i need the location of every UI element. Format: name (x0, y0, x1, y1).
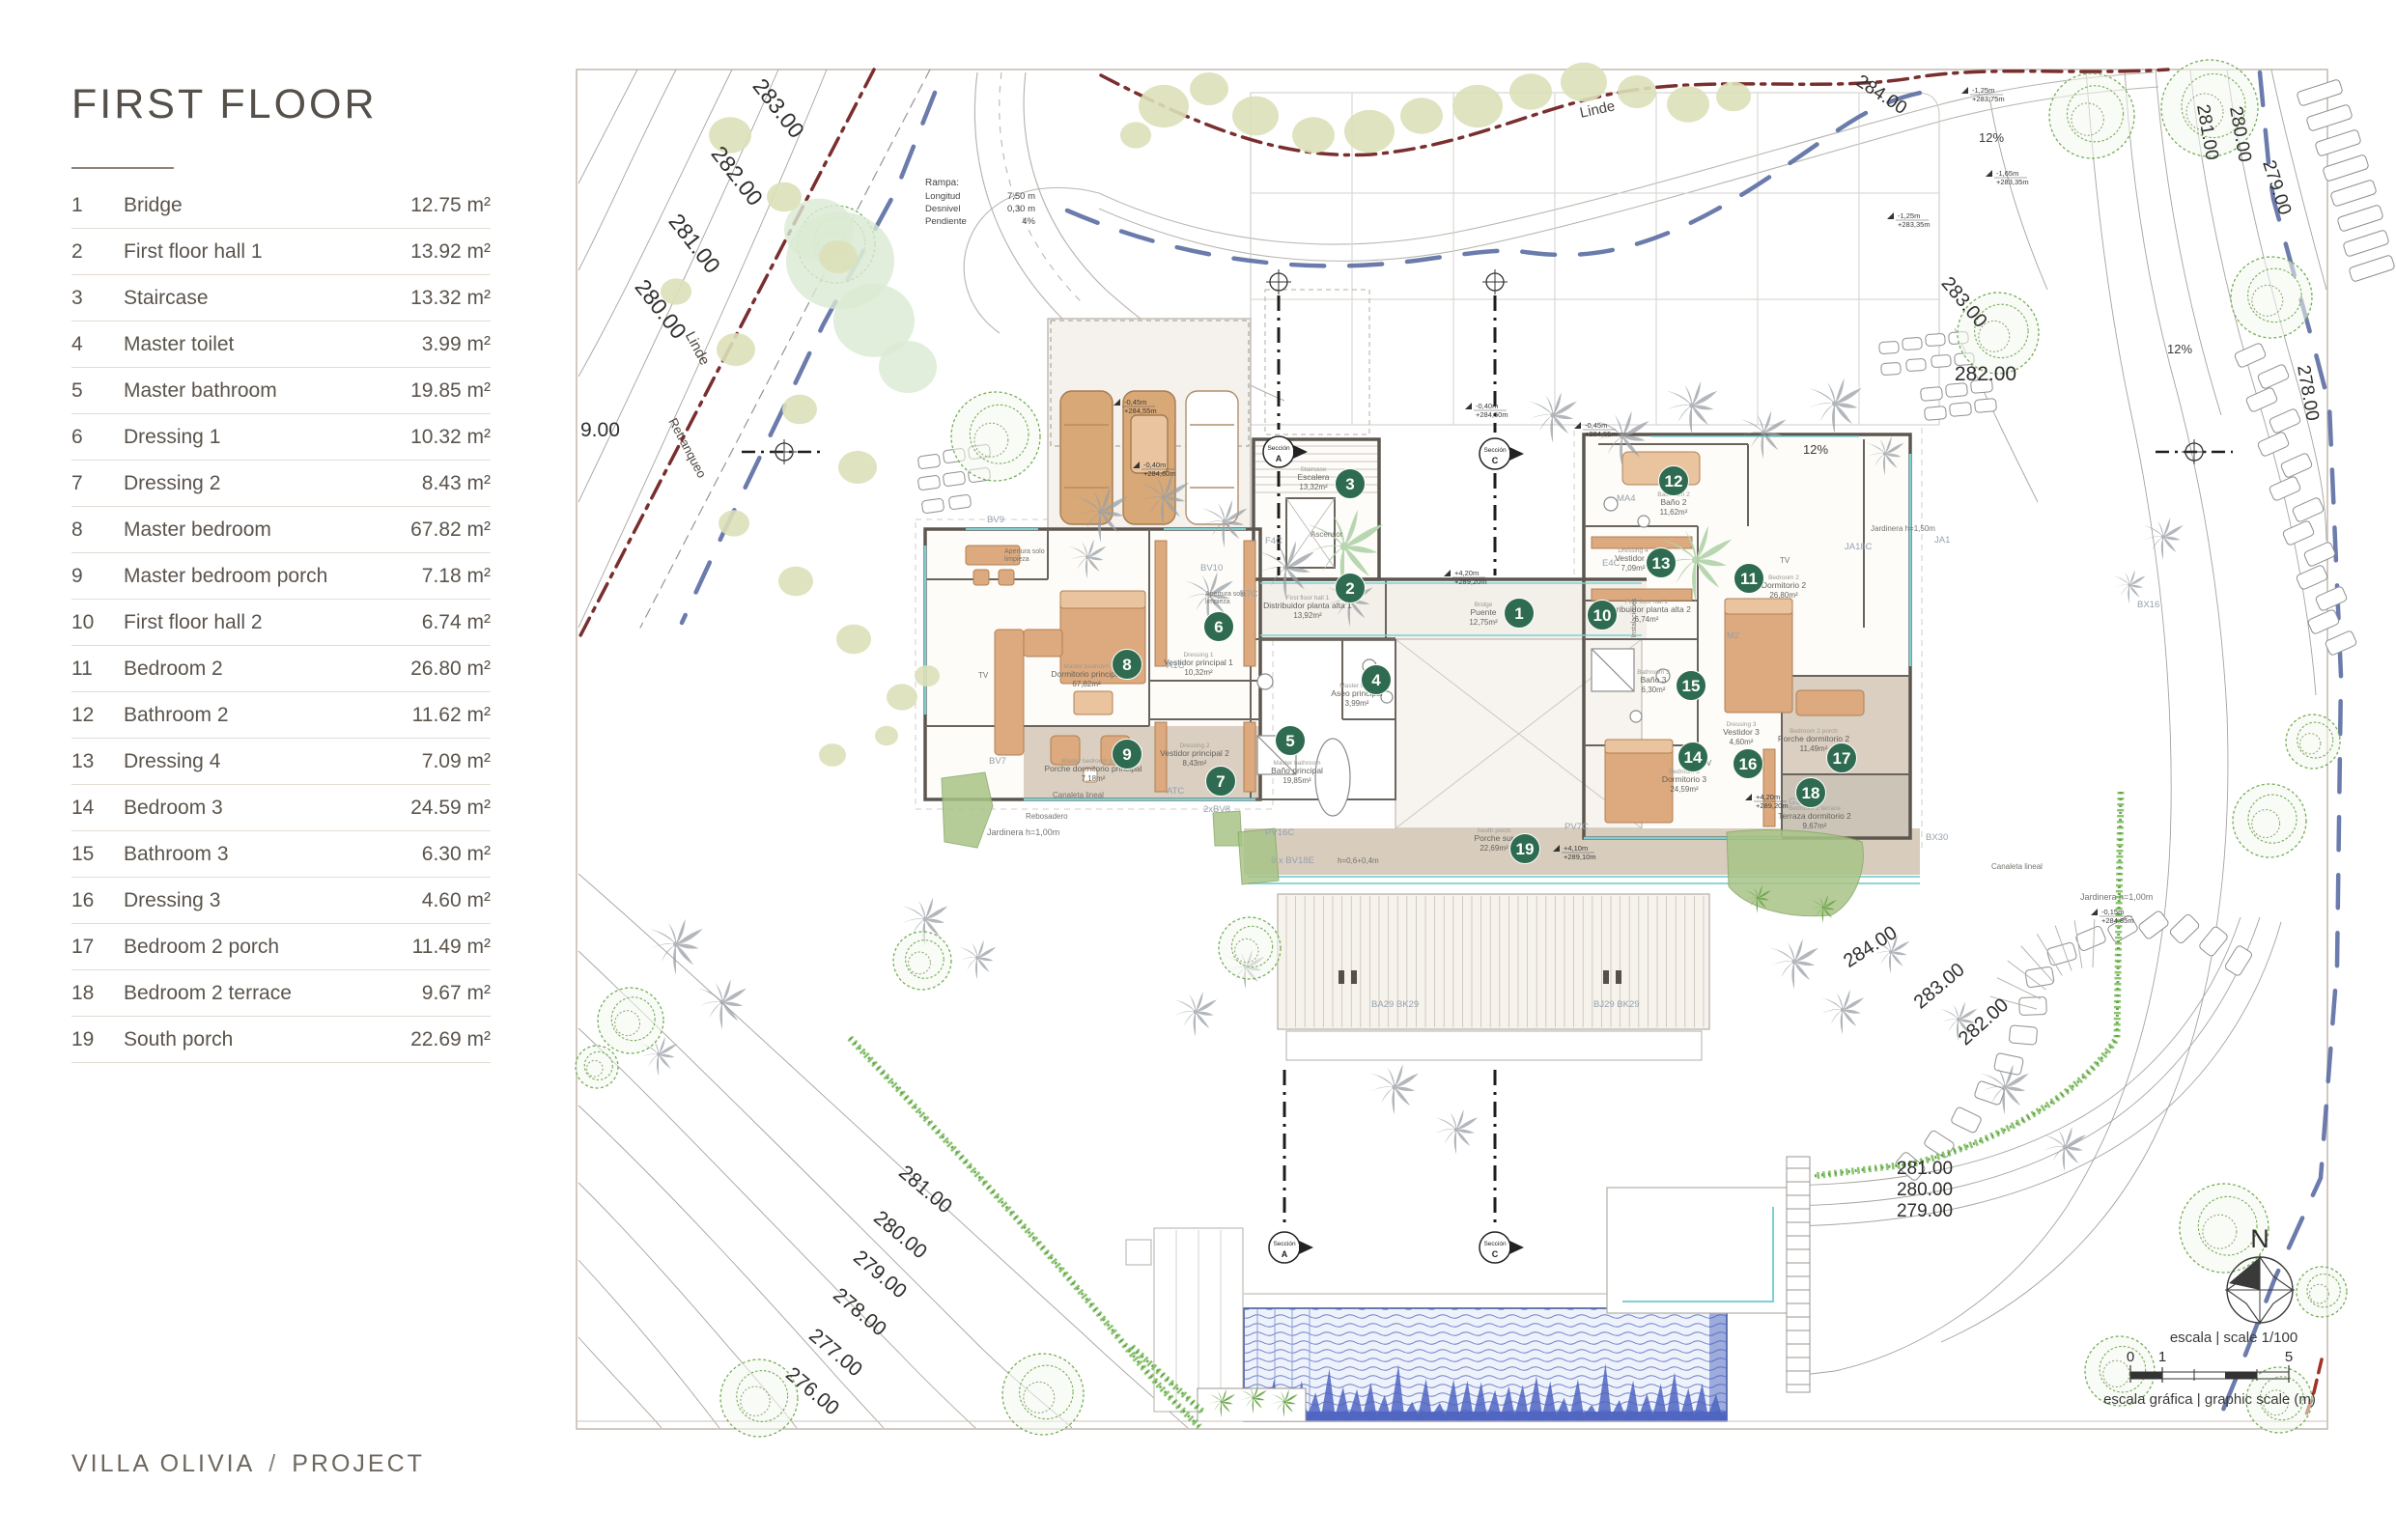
bush-icon (1120, 122, 1151, 148)
room-label-area: 7,18m² (1082, 774, 1106, 783)
room-badge: 15 (1677, 671, 1706, 701)
room-label-es: Porche sur (1474, 833, 1513, 843)
bush-icon (836, 625, 871, 655)
ramp-note-value: 0,30 m (1007, 204, 1035, 214)
room-badge: 12 (1659, 466, 1689, 496)
bush-icon (1452, 85, 1503, 127)
level-value: -1,25m (1898, 211, 1920, 220)
misc-label: limpieza (1205, 599, 1230, 605)
component-code: ATC (1167, 786, 1184, 797)
ramp-note-label: Pendiente (925, 216, 967, 227)
bush-icon (887, 684, 917, 710)
ramp-note-title: Rampa: (925, 178, 959, 188)
room-label-es: Porche dormitorio 2 (1778, 734, 1849, 743)
room-badge: 2 (1336, 574, 1366, 603)
bush-icon (778, 567, 813, 597)
section-marker-label: Sección (1483, 447, 1507, 454)
level-value: +284,55m (1124, 406, 1157, 415)
ramp-note-value: 4% (1022, 216, 1035, 227)
bush-icon (767, 182, 802, 212)
component-code: 2xBV8 (1203, 804, 1230, 815)
misc-label: Jardinera h=1,00m (987, 827, 1059, 837)
component-code: MA4 (1617, 493, 1636, 504)
room-label-es: Vestidor 3 (1723, 727, 1760, 737)
room-badge: 7 (1206, 767, 1236, 797)
level-value: +284,85m (2101, 916, 2134, 925)
level-value: +4,20m (1454, 569, 1479, 577)
bush-icon (1190, 72, 1228, 105)
room-label-es: Baño principal (1271, 766, 1323, 775)
level-value: -0,15m (2101, 908, 2124, 916)
room-badge-number: 19 (1516, 840, 1535, 858)
component-code: BV9 (987, 515, 1004, 525)
slope-label: 12% (1803, 442, 1828, 457)
room-label-area: 6,30m² (1642, 686, 1666, 694)
misc-label-vertical: Instalaciones (1631, 598, 1638, 637)
tree-icon (576, 1046, 618, 1088)
bush-icon (782, 395, 817, 425)
component-code: PV7C (1564, 822, 1589, 832)
level-value: +289,20m (1454, 577, 1487, 586)
bush-icon (717, 333, 755, 366)
room-label-area: 9,67m² (1803, 822, 1827, 830)
room-label-es: Baño 2 (1661, 497, 1687, 507)
bush-icon (1292, 117, 1335, 153)
room-badge: 3 (1336, 469, 1366, 499)
room-badge-number: 1 (1514, 604, 1523, 623)
misc-label: Apertura solo (1004, 548, 1045, 555)
scale-caption: escala gráfica | graphic scale (m) (2103, 1391, 2316, 1408)
misc-label: h=0,6+0,4m (1338, 856, 1379, 865)
level-value: -0,45m (1124, 398, 1146, 406)
room-label-area: 8,43m² (1183, 759, 1207, 768)
bush-icon (875, 726, 898, 745)
contour-label: 282.00 (1955, 363, 2016, 385)
room-badge-number: 10 (1593, 606, 1612, 625)
scale-number: 5 (2285, 1349, 2293, 1365)
tree-icon (720, 1359, 798, 1437)
slope-label: 12% (1979, 130, 2004, 145)
component-code: BV10 (1200, 563, 1223, 574)
room-badge-number: 7 (1216, 772, 1225, 791)
section-marker-letter: C (1492, 1249, 1499, 1259)
section-marker-letter: A (1276, 454, 1283, 463)
section-marker-label: Sección (1267, 445, 1290, 452)
component-code: BX16 (2137, 600, 2159, 610)
bush-icon (915, 665, 940, 686)
room-label-area: 13,92m² (1293, 611, 1322, 620)
ramp-note-label: Longitud (925, 191, 960, 202)
room-badge-number: 14 (1684, 748, 1703, 767)
shrub-cluster (879, 341, 937, 393)
room-label-area: 26,80m² (1769, 591, 1798, 600)
misc-label: TV (978, 671, 989, 680)
section-marker-label: Sección (1273, 1241, 1296, 1247)
bush-icon (819, 743, 846, 767)
slope-label: 12% (2167, 342, 2192, 356)
misc-label: Canaleta lineal (1991, 862, 2043, 871)
component-code: 9 x BV18E (1271, 855, 1314, 866)
room-label-area: 10,32m² (1184, 668, 1213, 677)
room-badge: 10 (1588, 601, 1618, 630)
bush-icon (1344, 110, 1395, 153)
component-code: JA18C (1845, 542, 1873, 552)
component-code: F4C (1265, 536, 1283, 546)
room-label-es: Vestidor principal 2 (1160, 748, 1229, 758)
misc-label: Ascensor (1311, 530, 1343, 539)
tree-icon (598, 988, 663, 1053)
room-badge: 9 (1113, 740, 1142, 770)
room-badge: 4 (1362, 665, 1392, 695)
bush-icon (1561, 63, 1607, 102)
level-value: +283,75m (1972, 95, 2005, 103)
bush-icon (1618, 75, 1656, 108)
misc-label: limpieza (1004, 556, 1029, 563)
level-value: +4,10m (1564, 844, 1588, 853)
ramp-note-label: Desnivel (925, 204, 960, 214)
room-badge: 6 (1204, 612, 1234, 642)
misc-label: Canaleta lineal (1053, 791, 1104, 799)
level-value: +289,20m (1756, 801, 1789, 810)
bush-icon (1716, 82, 1751, 112)
room-label-area: 24,59m² (1670, 785, 1699, 794)
room-badge-number: 11 (1740, 570, 1758, 588)
room-label-area: 3,99m² (1345, 699, 1369, 708)
room-badge-number: 3 (1345, 475, 1354, 493)
room-label-es: Terraza dormitorio 2 (1778, 811, 1851, 821)
room-badge-number: 2 (1345, 579, 1354, 598)
room-label-area: 67,82m² (1072, 680, 1101, 688)
room-badge: 11 (1734, 564, 1764, 594)
room-badge-number: 8 (1122, 656, 1131, 674)
room-badge-number: 13 (1652, 554, 1671, 573)
contour-label: 279.00 (1897, 1201, 1953, 1221)
component-code: M2 (1727, 630, 1739, 641)
planter-greenery (1213, 811, 1242, 846)
room-badge: 13 (1647, 548, 1677, 578)
room-label-area: 13,32m² (1299, 483, 1328, 491)
room-label-area: 6,74m² (1635, 615, 1659, 624)
component-code: JA1 (1934, 535, 1950, 546)
component-code: E4C (1602, 558, 1621, 569)
misc-label: Apertura solo (1205, 591, 1246, 598)
misc-label: Rebosadero (1026, 812, 1068, 821)
level-value: -1,25m (1972, 86, 1994, 95)
room-badge-number: 6 (1214, 618, 1223, 636)
room-label-es: Baño 3 (1641, 675, 1667, 685)
room-label-area: 22,69m² (1480, 844, 1508, 853)
room-label-es: Dormitorio 3 (1662, 774, 1707, 784)
room-badge: 16 (1734, 749, 1763, 779)
site-plan: Rampa:Longitud7,50 mDesnivel0,30 mPendie… (0, 0, 2396, 1540)
room-badge-number: 4 (1371, 671, 1381, 689)
ramp-note-value: 7,50 m (1007, 191, 1035, 202)
scale-number: 0 (2127, 1349, 2134, 1365)
room-label-es: Puente (1471, 607, 1497, 617)
bush-icon (838, 451, 877, 484)
level-value: +284,50m (1476, 410, 1508, 419)
bush-icon (819, 240, 858, 273)
bush-icon (1139, 85, 1189, 127)
level-value: +284,55m (1585, 430, 1618, 438)
room-badge: 17 (1827, 743, 1857, 773)
contour-label: 280.00 (1897, 1180, 1953, 1200)
level-value: -0,45m (1585, 421, 1607, 430)
bush-icon (1232, 97, 1279, 136)
room-label-es: Distribuidor planta alta 1 (1263, 601, 1352, 610)
section-marker-letter: A (1282, 1249, 1288, 1259)
level-value: +289,10m (1564, 853, 1596, 861)
room-label-area: 11,49m² (1800, 744, 1828, 753)
level-value: -0,40m (1476, 402, 1498, 410)
component-code: BX30 (1926, 832, 1948, 843)
room-label-area: 11,62m² (1660, 508, 1688, 517)
misc-label: TV (1780, 556, 1790, 565)
room-badge-number: 18 (1802, 784, 1820, 802)
level-value: +284,60m (1143, 469, 1176, 478)
contour-label: 9.00 (580, 419, 620, 441)
room-badge-number: 5 (1285, 732, 1294, 750)
room-label-area: 4,60m² (1730, 738, 1754, 746)
scale-title: escala | scale 1/100 (2170, 1330, 2297, 1346)
level-value: +283,35m (1996, 178, 2029, 186)
room-badge-number: 16 (1739, 755, 1758, 773)
tree-icon (2049, 73, 2134, 158)
north-label: N (2250, 1224, 2269, 1253)
room-badge-number: 9 (1122, 745, 1131, 764)
room-badge: 8 (1113, 650, 1142, 680)
misc-label: Jardinera h=1,00m (2080, 892, 2153, 902)
component-code: BA29 BK29 (1371, 999, 1419, 1010)
room-label-es: Escalera (1297, 472, 1329, 482)
component-code: BJ29 BK29 (1593, 999, 1640, 1010)
room-badge: 18 (1796, 778, 1826, 808)
tree-icon (2286, 714, 2340, 769)
room-label-area: 12,75m² (1469, 618, 1498, 627)
level-value: +283,35m (1898, 220, 1931, 229)
bush-icon (1667, 86, 1709, 122)
room-badge-number: 12 (1665, 472, 1683, 490)
level-value: -1,65m (1996, 169, 2018, 178)
room-badge: 5 (1276, 726, 1306, 756)
bush-icon (719, 510, 749, 536)
section-marker-letter: C (1492, 456, 1499, 465)
room-label-area: 19,85m² (1283, 776, 1311, 785)
room-badge: 14 (1678, 742, 1708, 772)
component-code: PV16C (1265, 827, 1294, 838)
level-value: +4,20m (1756, 793, 1780, 801)
misc-label: Jardinera h=1,50m (1871, 524, 1935, 533)
scale-number: 1 (2158, 1349, 2166, 1365)
component-code: A1C (1167, 660, 1185, 671)
room-label-es: Dormitorio principal (1051, 669, 1121, 679)
room-badge-number: 17 (1833, 749, 1851, 768)
room-badge-number: 15 (1682, 677, 1701, 695)
section-marker-label: Sección (1483, 1241, 1507, 1247)
room-badge: 19 (1510, 834, 1540, 864)
component-code: BV7 (989, 756, 1006, 767)
tree-icon (951, 392, 1040, 481)
room-label-area: 7,09m² (1621, 564, 1646, 573)
bush-icon (1509, 73, 1552, 109)
room-label-es: Dormitorio 2 (1762, 580, 1807, 590)
level-value: -0,40m (1143, 461, 1166, 469)
contour-label: 281.00 (1897, 1159, 1953, 1179)
room-badge: 1 (1505, 599, 1535, 629)
bush-icon (1400, 98, 1443, 133)
